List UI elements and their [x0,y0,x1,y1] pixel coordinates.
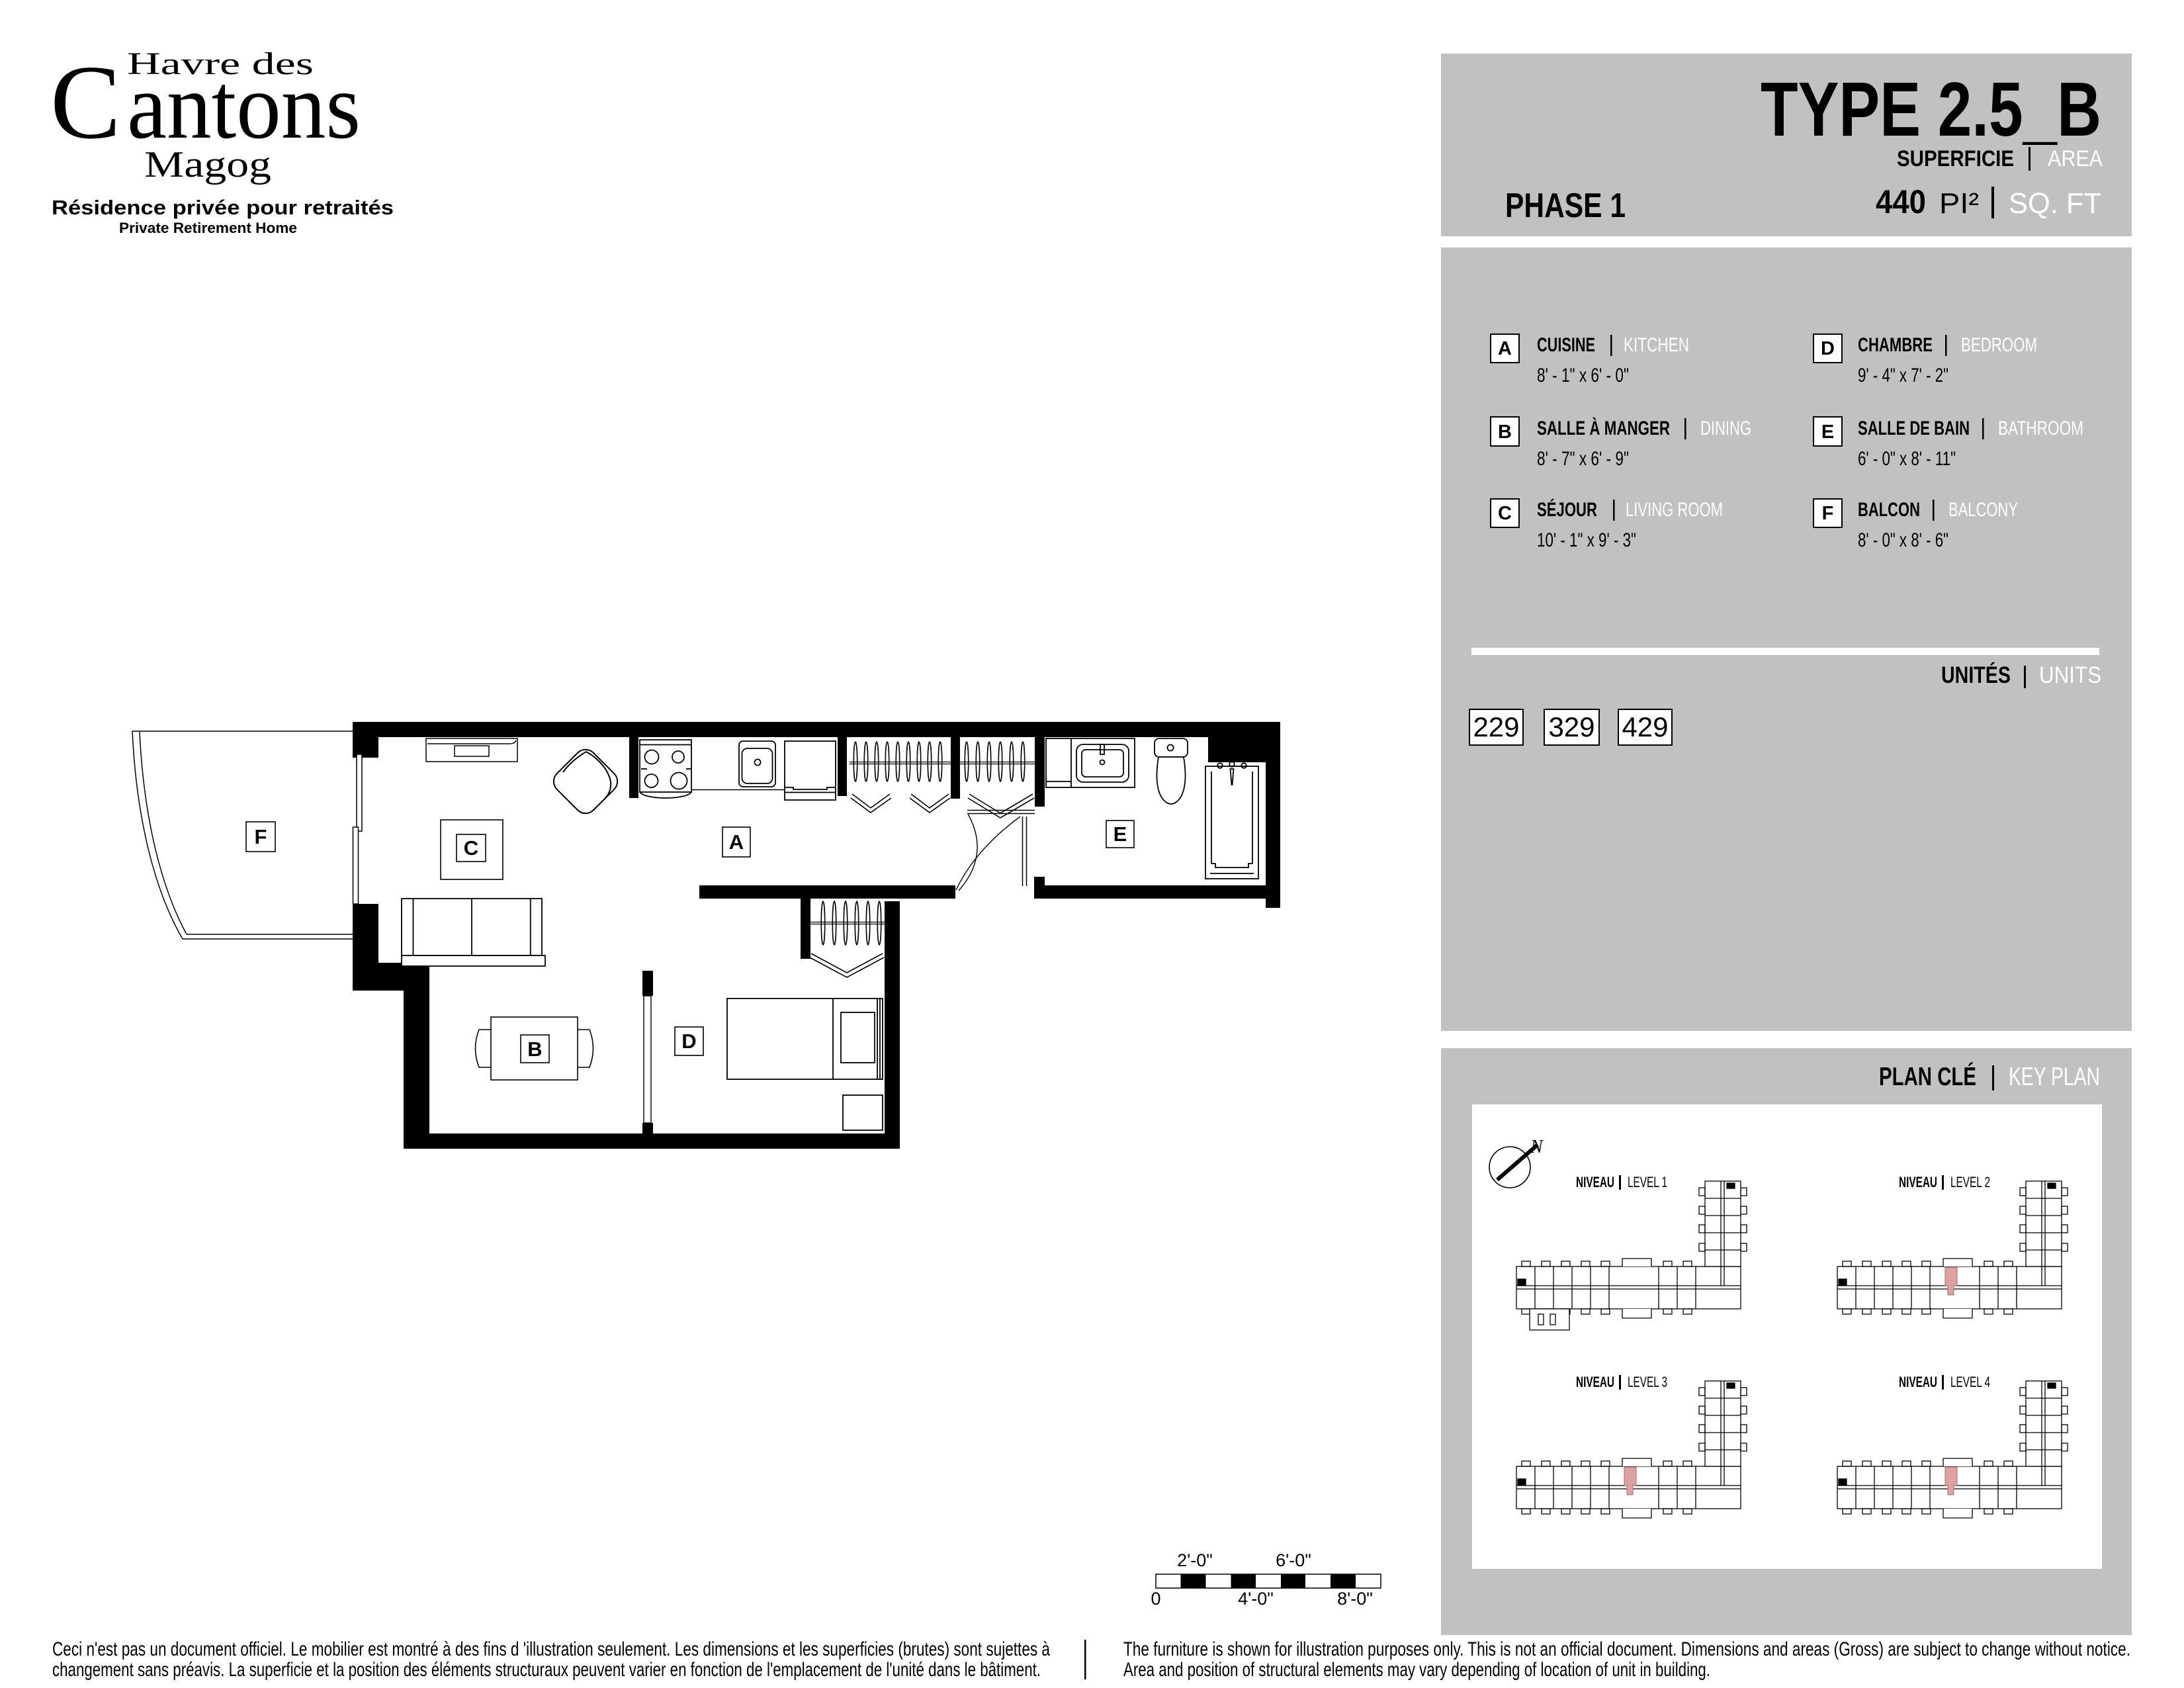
svg-text:229: 229 [1473,711,1519,742]
svg-text:The furniture is shown for ill: The furniture is shown for illustration … [1123,1638,2130,1660]
svg-text:NIVEAU: NIVEAU [1899,1174,1937,1190]
svg-text:Magog: Magog [144,144,271,185]
svg-text:BEDROOM: BEDROOM [1961,334,2037,356]
svg-text:329: 329 [1548,711,1594,742]
svg-text:E: E [1821,422,1834,443]
svg-text:NIVEAU: NIVEAU [1576,1374,1614,1390]
svg-text:LIVING ROOM: LIVING ROOM [1626,499,1723,521]
svg-text:SÉJOUR: SÉJOUR [1537,498,1597,521]
svg-text:PHASE 1: PHASE 1 [1505,187,1626,225]
svg-text:4'-0": 4'-0" [1238,1589,1274,1609]
svg-text:DINING: DINING [1700,418,1751,439]
svg-text:LEVEL 4: LEVEL 4 [1950,1374,1990,1390]
svg-text:6'-0": 6'-0" [1276,1550,1311,1570]
svg-text:UNITS: UNITS [2039,662,2101,688]
svg-text:SALLE À MANGER: SALLE À MANGER [1537,417,1670,439]
svg-text:B: B [1498,422,1512,443]
svg-text:2'-0": 2'-0" [1177,1550,1213,1570]
svg-text:PLAN CLÉ: PLAN CLÉ [1879,1062,1976,1091]
svg-text:BALCON: BALCON [1858,499,1920,521]
svg-text:Ceci n'est pas un document off: Ceci n'est pas un document officiel. Le … [52,1638,1050,1660]
svg-text:SALLE DE BAIN: SALLE DE BAIN [1858,418,1970,439]
svg-text:CHAMBRE: CHAMBRE [1858,334,1933,356]
svg-text:9' - 4" x 7' - 2": 9' - 4" x 7' - 2" [1858,365,1948,386]
svg-text:0: 0 [1151,1589,1160,1609]
svg-text:429: 429 [1622,711,1668,742]
svg-text:antons: antons [127,54,361,158]
svg-text:NIVEAU: NIVEAU [1899,1374,1937,1390]
svg-text:TYPE 2.5_B: TYPE 2.5_B [1761,66,2101,152]
svg-text:LEVEL 1: LEVEL 1 [1628,1174,1667,1190]
svg-text:changement sans préavis. La su: changement sans préavis. La superficie e… [52,1659,1041,1681]
svg-text:Area and position of structura: Area and position of structural elements… [1123,1659,1710,1681]
svg-text:Private Retirement Home: Private Retirement Home [119,220,297,236]
svg-text:8' - 0" x 8' - 6": 8' - 0" x 8' - 6" [1858,529,1948,551]
svg-text:SUPERFICIE: SUPERFICIE [1897,146,2014,171]
svg-text:F: F [255,825,267,848]
svg-text:E: E [1114,822,1127,846]
svg-text:LEVEL 3: LEVEL 3 [1628,1374,1667,1390]
svg-text:N: N [1530,1137,1544,1157]
svg-text:KEY PLAN: KEY PLAN [2009,1063,2100,1091]
svg-text:BALCONY: BALCONY [1948,499,2018,521]
svg-text:AREA: AREA [2048,146,2103,171]
svg-text:6' - 0" x 8' - 11": 6' - 0" x 8' - 11" [1858,448,1956,470]
svg-text:C: C [50,43,121,161]
svg-text:10' - 1" x 9' - 3": 10' - 1" x 9' - 3" [1537,529,1636,551]
svg-text:UNITÉS: UNITÉS [1941,662,2011,688]
svg-text:8' - 7" x 6' - 9": 8' - 7" x 6' - 9" [1537,448,1629,470]
svg-text:C: C [1498,503,1512,524]
svg-text:D: D [1821,338,1835,359]
svg-text:CUISINE: CUISINE [1537,334,1595,356]
svg-text:LEVEL 2: LEVEL 2 [1950,1174,1990,1190]
svg-text:F: F [1822,503,1834,524]
svg-text:B: B [527,1038,542,1061]
svg-text:BATHROOM: BATHROOM [1998,418,2083,439]
svg-text:A: A [729,830,744,854]
svg-text:SQ. FT: SQ. FT [2009,187,2101,220]
svg-text:8' - 1" x 6' - 0": 8' - 1" x 6' - 0" [1537,365,1629,386]
svg-text:PI²: PI² [1939,187,1979,220]
svg-text:A: A [1498,338,1512,359]
svg-text:NIVEAU: NIVEAU [1576,1174,1614,1190]
svg-text:8'-0": 8'-0" [1337,1589,1373,1609]
svg-text:KITCHEN: KITCHEN [1624,334,1689,356]
svg-text:C: C [464,836,478,860]
svg-text:Résidence privée pour retraité: Résidence privée pour retraités [52,196,394,219]
svg-text:440: 440 [1876,183,1926,220]
svg-text:D: D [681,1030,696,1053]
